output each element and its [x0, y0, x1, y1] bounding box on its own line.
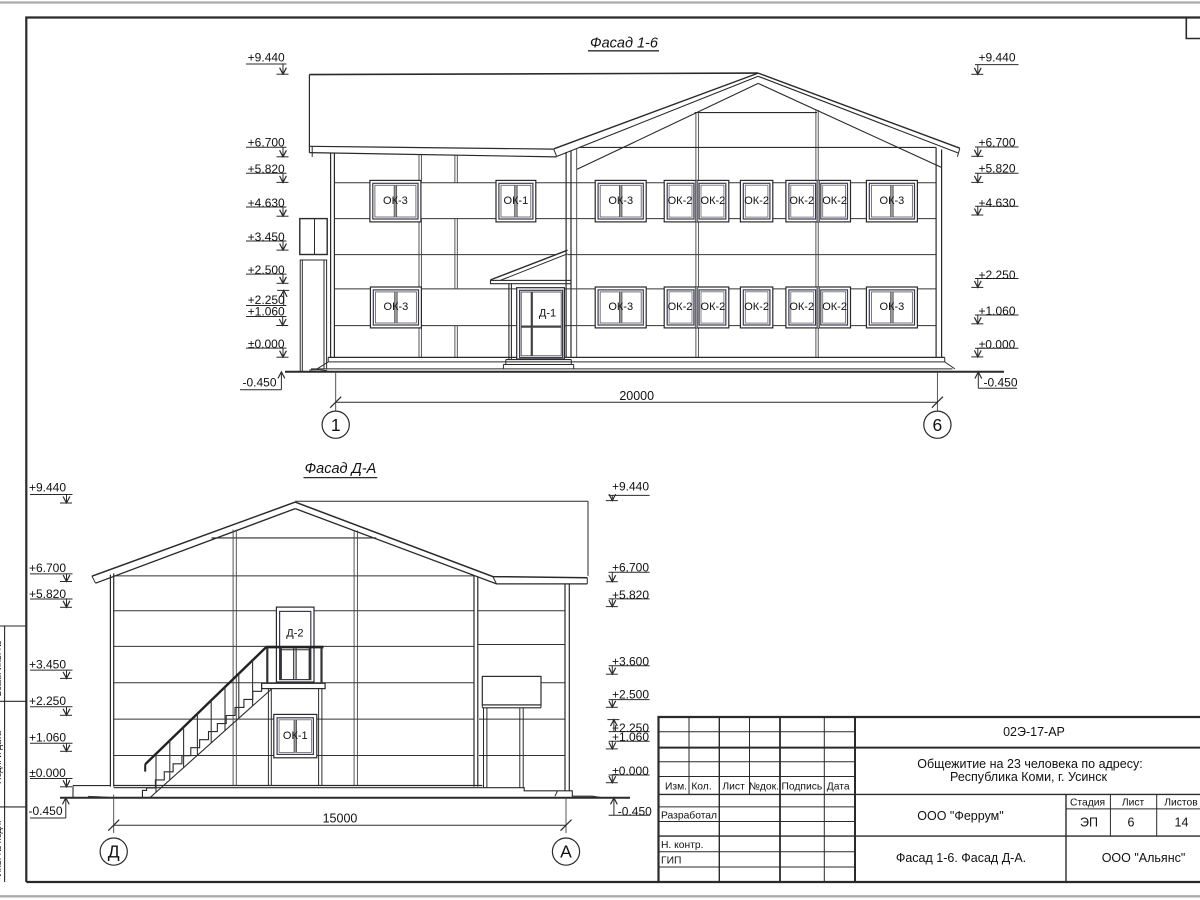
- svg-text:ОК-2: ОК-2: [789, 301, 814, 313]
- svg-text:Д-1: Д-1: [539, 308, 556, 320]
- svg-text:ОК-2: ОК-2: [822, 195, 847, 207]
- svg-text:ОК-3: ОК-3: [383, 195, 408, 207]
- svg-text:Республика Коми, г. Усинск: Республика Коми, г. Усинск: [950, 770, 1107, 784]
- svg-text:+2.250: +2.250: [978, 268, 1015, 282]
- svg-text:ОК-2: ОК-2: [701, 301, 726, 313]
- svg-text:Разработал: Разработал: [661, 810, 717, 822]
- svg-text:+5.820: +5.820: [29, 587, 66, 601]
- svg-text:+2.250: +2.250: [29, 694, 66, 708]
- svg-text:Фасад Д-А: Фасад Д-А: [305, 461, 377, 477]
- svg-text:+2.500: +2.500: [612, 688, 649, 702]
- svg-text:Д: Д: [108, 842, 120, 862]
- svg-text:±0.000: ±0.000: [612, 764, 649, 778]
- svg-text:Кол.: Кол.: [691, 782, 711, 793]
- svg-text:+4.630: +4.630: [248, 196, 285, 210]
- svg-text:ООО "Феррум": ООО "Феррум": [917, 809, 1003, 823]
- svg-text:-0.450: -0.450: [28, 804, 62, 818]
- svg-text:+1.060: +1.060: [248, 304, 285, 318]
- svg-text:Дата: Дата: [827, 782, 850, 793]
- svg-text:Н. контр.: Н. контр.: [661, 840, 704, 851]
- svg-text:Лист: Лист: [722, 782, 745, 793]
- svg-text:Подпись: Подпись: [782, 782, 823, 793]
- svg-text:02Э-17-АР: 02Э-17-АР: [1003, 725, 1065, 739]
- svg-text:ОК-2: ОК-2: [822, 301, 847, 313]
- svg-text:±0.000: ±0.000: [29, 766, 66, 780]
- svg-text:ОК-3: ОК-3: [608, 195, 633, 207]
- svg-text:+6.700: +6.700: [29, 561, 66, 575]
- svg-text:+9.440: +9.440: [248, 51, 285, 65]
- svg-text:Лист: Лист: [1122, 797, 1145, 808]
- svg-text:ОК-2: ОК-2: [668, 195, 693, 207]
- svg-text:±0.000: ±0.000: [979, 337, 1016, 351]
- svg-text:+1.060: +1.060: [612, 730, 649, 744]
- svg-text:ОК-2: ОК-2: [744, 301, 769, 313]
- svg-text:20000: 20000: [619, 389, 654, 403]
- svg-text:+9.440: +9.440: [29, 480, 66, 494]
- svg-text:Инв. № подл.: Инв. № подл.: [0, 820, 3, 876]
- svg-text:Изм.: Изм.: [665, 782, 687, 793]
- svg-text:+6.700: +6.700: [978, 136, 1015, 150]
- svg-text:ОК-2: ОК-2: [668, 301, 693, 313]
- svg-text:ЭП: ЭП: [1080, 815, 1098, 829]
- svg-text:+3.450: +3.450: [248, 230, 285, 244]
- svg-text:+9.440: +9.440: [978, 51, 1015, 65]
- svg-text:ГИП: ГИП: [661, 856, 681, 867]
- svg-text:-0.450: -0.450: [618, 804, 652, 818]
- svg-text:Д-2: Д-2: [286, 628, 303, 640]
- svg-text:Подп. и дата: Подп. и дата: [0, 731, 3, 784]
- svg-text:ОК-3: ОК-3: [384, 301, 409, 313]
- svg-text:+5.820: +5.820: [978, 161, 1015, 175]
- svg-text:ООО "Альянс": ООО "Альянс": [1102, 851, 1186, 865]
- svg-text:ОК-3: ОК-3: [608, 301, 633, 313]
- svg-text:№док.: №док.: [749, 782, 779, 793]
- svg-text:Стадия: Стадия: [1070, 797, 1105, 808]
- svg-text:Листов: Листов: [1164, 797, 1198, 808]
- svg-text:ОК-1: ОК-1: [504, 195, 529, 207]
- svg-text:ОК-2: ОК-2: [701, 195, 726, 207]
- svg-text:+1.060: +1.060: [29, 731, 66, 745]
- svg-text:1: 1: [331, 415, 341, 435]
- svg-text:Взам. инв. №: Взам. инв. №: [0, 640, 3, 696]
- svg-text:-0.450: -0.450: [242, 376, 276, 390]
- svg-text:+5.820: +5.820: [248, 162, 285, 176]
- svg-text:+5.820: +5.820: [612, 588, 649, 602]
- svg-text:ОК-3: ОК-3: [880, 195, 905, 207]
- svg-text:+9.440: +9.440: [612, 480, 649, 494]
- svg-text:Фасад 1-6: Фасад 1-6: [590, 36, 659, 52]
- svg-text:+6.700: +6.700: [248, 135, 285, 149]
- svg-text:ОК-3: ОК-3: [880, 301, 905, 313]
- svg-text:+4.630: +4.630: [978, 196, 1015, 210]
- svg-text:±0.000: ±0.000: [248, 337, 285, 351]
- svg-text:15000: 15000: [323, 811, 358, 825]
- svg-text:+6.700: +6.700: [612, 561, 649, 575]
- svg-text:Фасад 1-6. Фасад Д-А.: Фасад 1-6. Фасад Д-А.: [896, 851, 1026, 865]
- svg-text:ОК-1: ОК-1: [283, 730, 308, 742]
- svg-text:+3.450: +3.450: [29, 658, 66, 672]
- svg-text:6: 6: [1128, 815, 1135, 829]
- svg-text:ОК-2: ОК-2: [789, 195, 814, 207]
- svg-text:+2.500: +2.500: [248, 263, 285, 277]
- svg-text:-0.450: -0.450: [983, 376, 1017, 390]
- svg-text:14: 14: [1175, 815, 1189, 829]
- svg-text:ОК-2: ОК-2: [744, 195, 769, 207]
- svg-text:+3.600: +3.600: [612, 654, 649, 668]
- svg-text:Общежитие на 23 человека по ад: Общежитие на 23 человека по адресу:: [917, 757, 1142, 771]
- svg-text:6: 6: [933, 415, 943, 435]
- svg-text:А: А: [560, 842, 572, 862]
- svg-text:+1.060: +1.060: [978, 304, 1015, 318]
